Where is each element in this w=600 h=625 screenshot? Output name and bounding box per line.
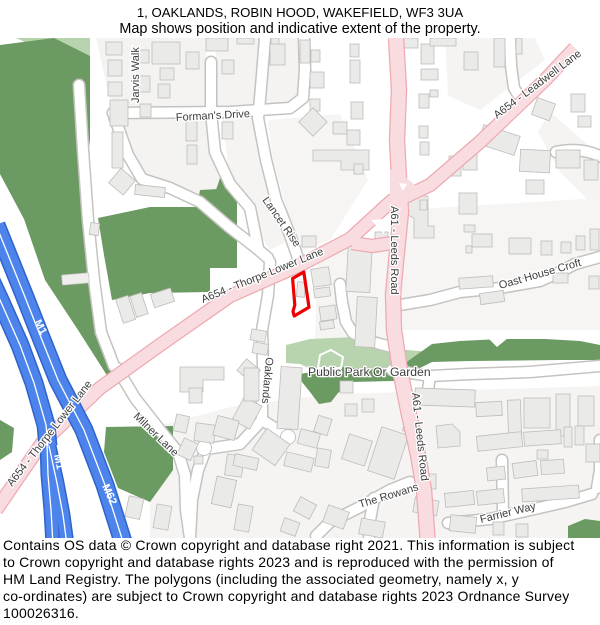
svg-text:A61 - Leeds Road: A61 - Leeds Road xyxy=(388,206,400,295)
svg-text:Jarvis Walk: Jarvis Walk xyxy=(130,47,142,103)
svg-text:Public Park Or Garden: Public Park Or Garden xyxy=(308,365,431,379)
